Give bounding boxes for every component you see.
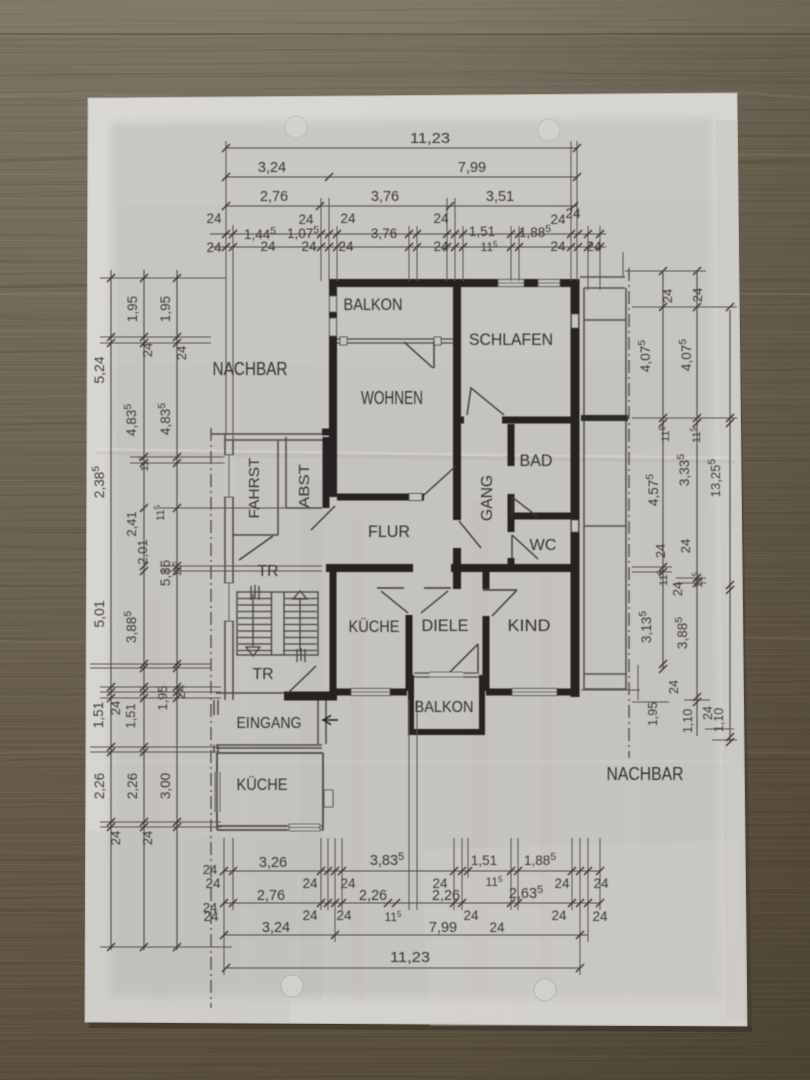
- svg-text:24: 24: [660, 289, 675, 303]
- svg-text:1,95: 1,95: [646, 702, 660, 726]
- svg-text:24: 24: [565, 206, 581, 221]
- svg-text:24: 24: [203, 862, 217, 877]
- svg-text:24: 24: [140, 831, 155, 845]
- svg-text:24: 24: [108, 701, 123, 715]
- svg-text:24: 24: [301, 239, 317, 254]
- svg-text:24: 24: [667, 680, 681, 694]
- svg-text:24: 24: [550, 239, 566, 254]
- svg-text:KIND: KIND: [508, 616, 551, 635]
- svg-text:24: 24: [260, 239, 276, 254]
- svg-text:NACHBAR: NACHBAR: [607, 764, 684, 784]
- svg-text:24: 24: [302, 876, 318, 891]
- svg-text:24: 24: [173, 685, 188, 699]
- svg-text:1,10: 1,10: [712, 708, 726, 732]
- svg-text:KÜCHE: KÜCHE: [349, 618, 400, 636]
- svg-text:5,24: 5,24: [91, 356, 107, 383]
- svg-text:24: 24: [336, 908, 352, 923]
- svg-text:24: 24: [593, 876, 609, 891]
- svg-text:1,95: 1,95: [125, 296, 140, 322]
- svg-text:1,95: 1,95: [155, 685, 170, 710]
- svg-text:24: 24: [433, 239, 449, 254]
- svg-text:24: 24: [550, 212, 566, 227]
- svg-text:24: 24: [206, 211, 222, 226]
- svg-text:24: 24: [489, 920, 505, 935]
- svg-text:24: 24: [554, 876, 570, 891]
- svg-text:5,86: 5,86: [158, 560, 173, 586]
- svg-text:BAD: BAD: [520, 451, 553, 470]
- svg-text:24: 24: [140, 343, 155, 357]
- svg-text:NACHBAR: NACHBAR: [213, 359, 288, 379]
- svg-text:5,01: 5,01: [91, 600, 107, 627]
- svg-text:KÜCHE: KÜCHE: [237, 776, 288, 794]
- svg-text:24: 24: [298, 212, 314, 227]
- svg-text:WOHNEN: WOHNEN: [361, 388, 423, 408]
- svg-text:3,24: 3,24: [258, 160, 286, 176]
- svg-text:24: 24: [670, 582, 685, 596]
- svg-text:FLUR: FLUR: [368, 522, 410, 541]
- svg-text:24: 24: [463, 908, 479, 923]
- svg-text:24: 24: [592, 909, 608, 924]
- svg-text:2,26: 2,26: [125, 773, 140, 799]
- svg-text:1,95: 1,95: [158, 296, 173, 322]
- svg-text:24: 24: [551, 908, 567, 923]
- svg-text:24: 24: [340, 211, 356, 226]
- svg-text:EINGANG: EINGANG: [237, 715, 302, 732]
- svg-text:2,26: 2,26: [432, 888, 460, 904]
- svg-text:TR: TR: [258, 563, 279, 580]
- svg-text:1,51: 1,51: [469, 224, 495, 239]
- svg-text:TR: TR: [253, 666, 274, 683]
- svg-text:1,10: 1,10: [681, 709, 695, 733]
- svg-text:7,99: 7,99: [429, 920, 457, 936]
- svg-text:24: 24: [340, 876, 356, 891]
- svg-text:2,01: 2,01: [135, 539, 150, 564]
- svg-text:GANG: GANG: [479, 475, 496, 521]
- svg-text:24: 24: [108, 831, 123, 845]
- svg-text:2,76: 2,76: [257, 888, 285, 904]
- svg-text:2,26: 2,26: [359, 888, 387, 904]
- svg-text:24: 24: [690, 288, 705, 302]
- svg-text:BALKON: BALKON: [344, 295, 403, 314]
- svg-text:2,26: 2,26: [92, 773, 107, 799]
- svg-text:24: 24: [586, 239, 602, 254]
- svg-text:2,41: 2,41: [124, 511, 139, 536]
- svg-text:2,76: 2,76: [260, 189, 288, 205]
- svg-text:24: 24: [338, 239, 354, 254]
- svg-text:24: 24: [203, 900, 217, 915]
- svg-text:24: 24: [678, 539, 693, 553]
- svg-text:3,00: 3,00: [158, 773, 173, 799]
- svg-text:24: 24: [433, 211, 449, 226]
- svg-text:24: 24: [206, 240, 222, 255]
- svg-text:3,76: 3,76: [371, 226, 397, 241]
- svg-text:24: 24: [205, 876, 221, 891]
- svg-text:24: 24: [174, 346, 189, 360]
- svg-text:3,26: 3,26: [259, 855, 287, 871]
- svg-text:11,23: 11,23: [390, 949, 430, 966]
- svg-text:3,51: 3,51: [486, 189, 514, 205]
- svg-text:24: 24: [302, 908, 318, 923]
- svg-text:WC: WC: [530, 537, 557, 554]
- svg-text:SCHLAFEN: SCHLAFEN: [469, 330, 553, 349]
- svg-text:24: 24: [653, 544, 668, 558]
- svg-text:1,51: 1,51: [471, 853, 497, 868]
- svg-text:3,76: 3,76: [371, 189, 399, 205]
- svg-text:DIELE: DIELE: [422, 616, 469, 635]
- svg-text:FAHRST: FAHRST: [246, 458, 263, 519]
- svg-text:3,24: 3,24: [262, 920, 290, 936]
- svg-text:1,51: 1,51: [91, 702, 106, 728]
- svg-text:ABST: ABST: [296, 464, 313, 508]
- svg-text:11,23: 11,23: [410, 130, 450, 147]
- svg-text:1,51: 1,51: [123, 703, 138, 728]
- svg-text:7,99: 7,99: [458, 160, 486, 176]
- svg-text:BALKON: BALKON: [415, 699, 474, 716]
